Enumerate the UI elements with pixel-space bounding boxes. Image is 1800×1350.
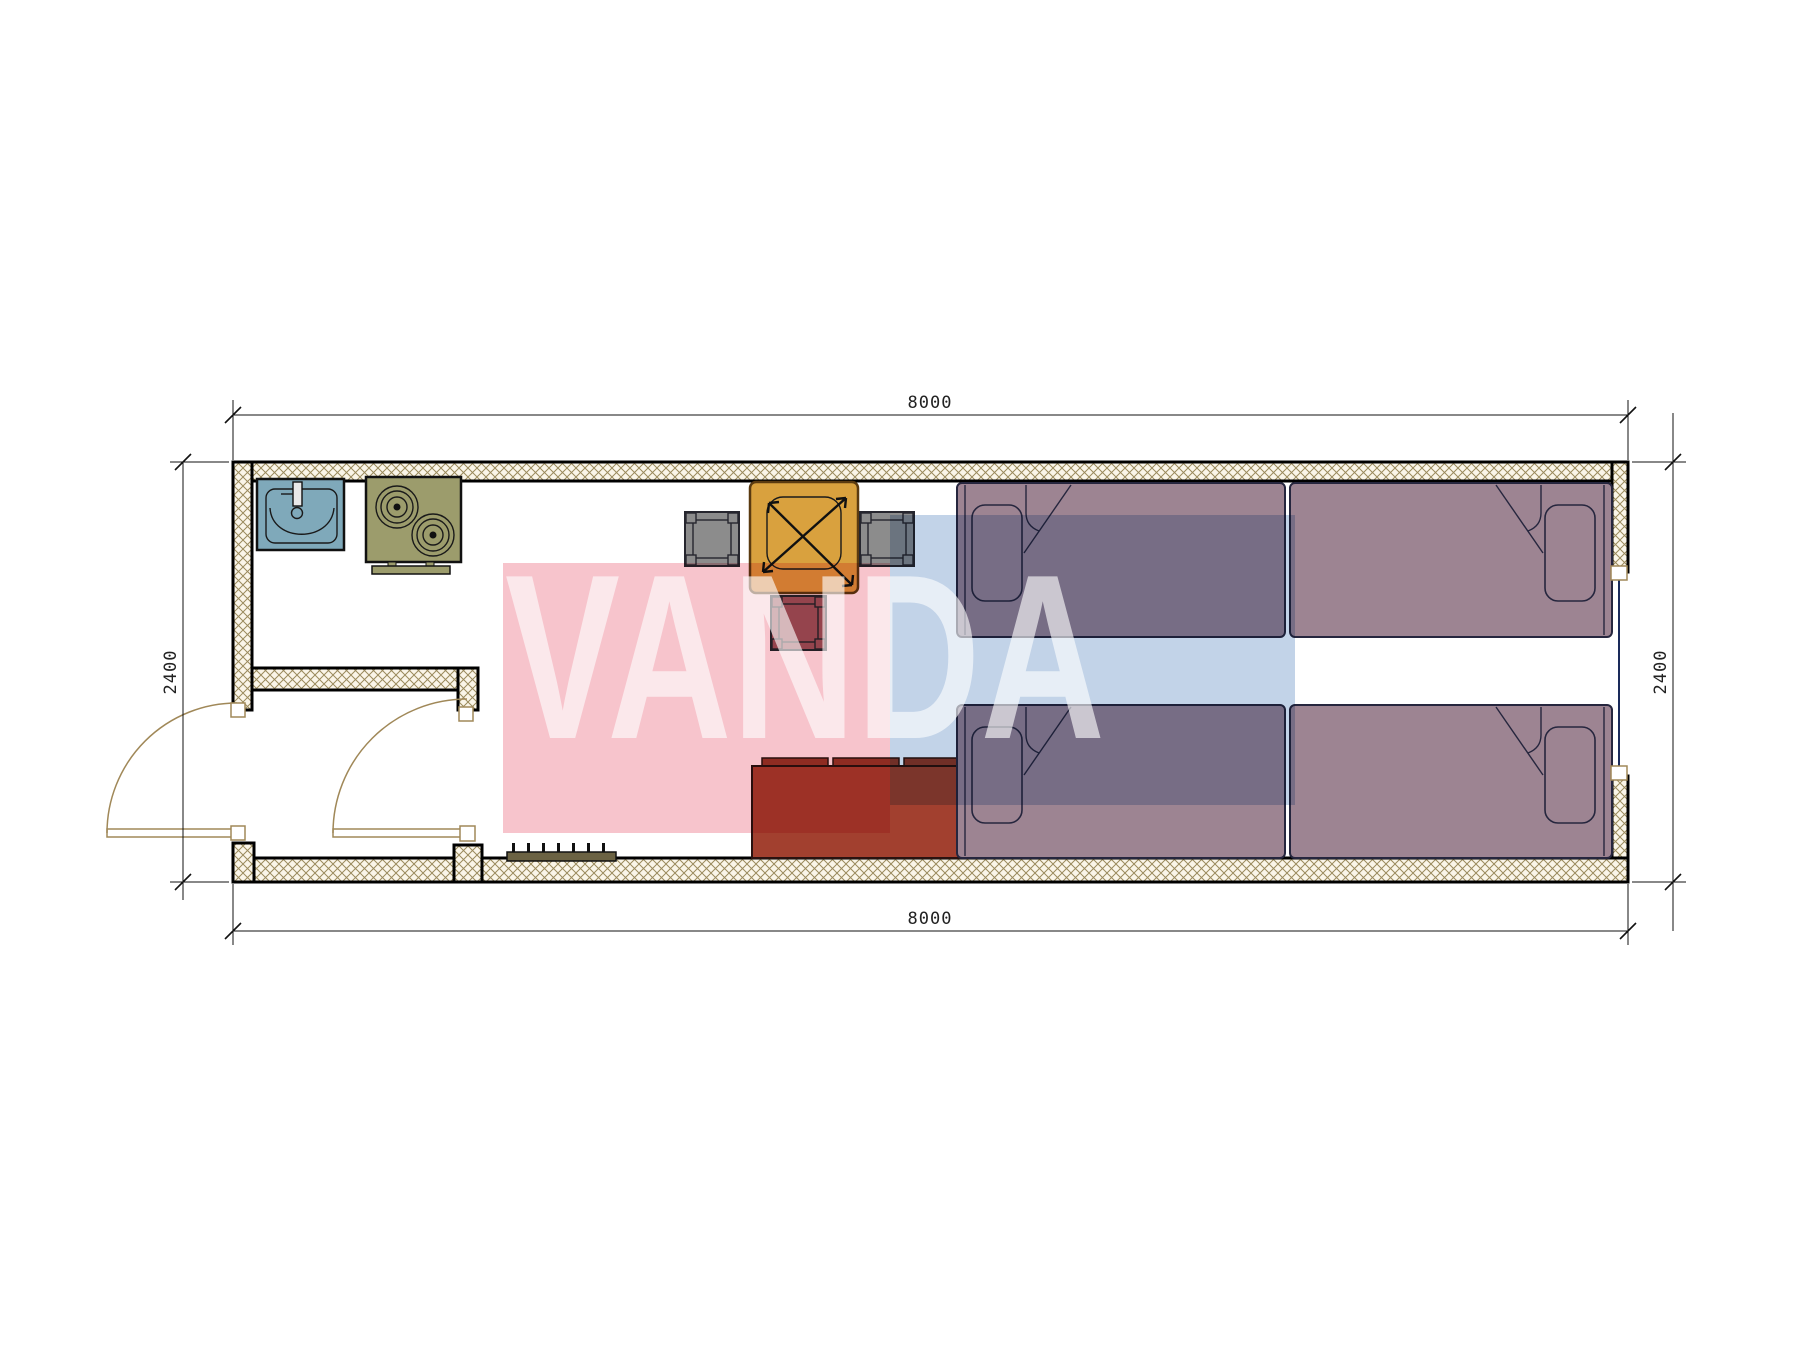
floor-plan-canvas: 8000 8000 2400 2400 VANDA (0, 0, 1800, 1350)
interior-door (333, 699, 467, 837)
door-jambs (231, 703, 475, 841)
dimension-right: 2400 (1632, 413, 1686, 931)
wall-left (233, 462, 252, 710)
dim-label-right: 2400 (1651, 650, 1671, 695)
floor-plan-drawing: 8000 8000 2400 2400 VANDA (0, 0, 1800, 1350)
watermark-text: VANDA (505, 525, 1105, 788)
wall-bottom-corner-block (233, 843, 254, 882)
dimension-top: 8000 (225, 393, 1636, 460)
stove (366, 477, 461, 574)
dim-label-top: 8000 (908, 393, 953, 413)
coat-rack (507, 843, 616, 861)
wall-right-upper (1612, 462, 1628, 572)
watermark: VANDA (503, 515, 1295, 833)
sink (257, 479, 344, 550)
dimension-bottom: 8000 (225, 884, 1636, 945)
wall-bottom-pier (454, 845, 482, 882)
bed-top-right (1290, 483, 1612, 637)
wall-interior-horizontal (252, 668, 458, 690)
wall-interior-stub (458, 668, 478, 710)
window-right-wall (1611, 566, 1627, 780)
dim-label-left: 2400 (161, 650, 181, 695)
entry-door (107, 703, 237, 837)
wall-bottom (233, 858, 1628, 882)
bed-bottom-right (1290, 705, 1612, 858)
dim-label-bottom: 8000 (908, 909, 953, 929)
